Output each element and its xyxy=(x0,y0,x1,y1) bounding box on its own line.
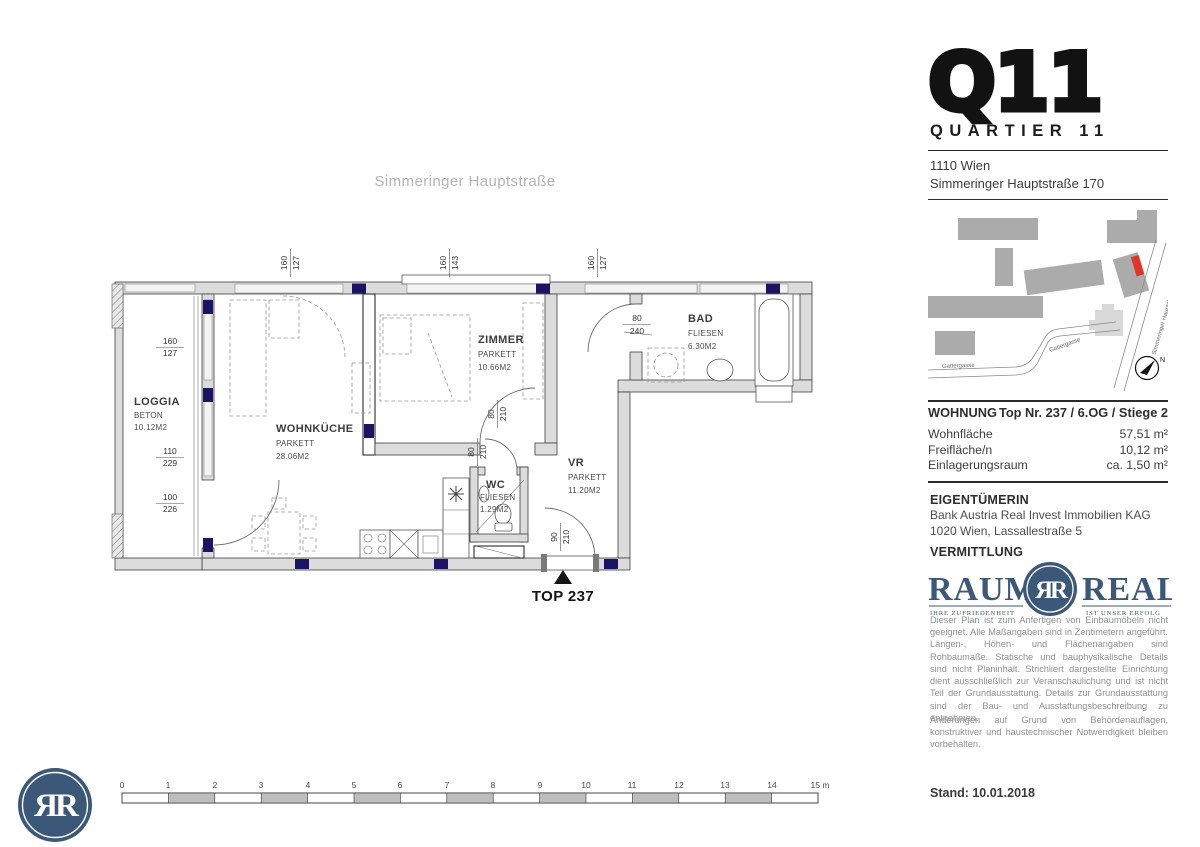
svg-text:240: 240 xyxy=(630,326,644,336)
owner-line2: 1020 Wien, Lassallestraße 5 xyxy=(930,524,1151,540)
brand-raum-text: RAUM xyxy=(928,571,1038,608)
sidebar: Q11 QUARTIER 11 1110 Wien Simmeringer Ha… xyxy=(928,0,1170,847)
map-street-label-gattergasse: Gattergasse xyxy=(942,363,976,370)
svg-text:143: 143 xyxy=(450,256,460,270)
svg-text:3: 3 xyxy=(259,780,264,790)
svg-text:229: 229 xyxy=(163,458,177,468)
svg-text:160: 160 xyxy=(163,336,177,346)
street-context-label: Simmeringer Hauptstraße xyxy=(300,173,630,190)
unit-row-value: ca. 1,50 m² xyxy=(1106,458,1168,474)
room-wohnkueche-material: PARKETT xyxy=(276,439,314,448)
divider xyxy=(928,199,1168,200)
dim-bad-door: 80 240 xyxy=(623,313,652,336)
svg-text:90: 90 xyxy=(549,532,559,542)
dim-loggia-window: 160 127 xyxy=(156,336,184,358)
broker-heading: VERMITTLUNG xyxy=(930,545,1023,559)
scale-bar-segments xyxy=(122,793,818,803)
project-address: 1110 Wien Simmeringer Hauptstraße 170 xyxy=(930,157,1104,192)
dim-window-top-left: 160 127 xyxy=(279,249,301,277)
svg-text:13: 13 xyxy=(720,780,730,790)
scale-bar: 0 1 2 3 4 5 6 7 8 9 10 11 12 13 14 15 m xyxy=(100,772,860,817)
svg-text:127: 127 xyxy=(291,256,301,270)
dim-window-top-mid: 160 143 xyxy=(438,249,460,277)
compass-icon: N xyxy=(1136,357,1166,380)
svg-text:160: 160 xyxy=(438,256,448,270)
q11-logo-text: Q11 xyxy=(928,36,1101,126)
svg-text:210: 210 xyxy=(561,530,571,544)
unit-row-label: Freifläche/n xyxy=(928,443,992,459)
disclaimer-paragraph-1: Dieser Plan ist zum Anfertigen von Einba… xyxy=(930,614,1168,724)
svg-text:10: 10 xyxy=(581,780,591,790)
top-number-label: TOP 237 xyxy=(532,588,594,605)
room-zimmer-material: PARKETT xyxy=(478,350,516,359)
raumreal-brand-logo: RAUM REAL IHRE ZUFRIEDENHEIT IST UNSER E… xyxy=(928,560,1172,620)
disclaimer-paragraph-2: Änderungen auf Grund von Behördenauflage… xyxy=(930,714,1168,751)
dim-window-top-right: 160 127 xyxy=(586,249,608,277)
room-vr-name: VR xyxy=(568,457,584,469)
divider xyxy=(928,150,1168,151)
svg-text:0: 0 xyxy=(120,780,125,790)
site-map: Gattergasse Gattergasse Simmeringer Haup… xyxy=(928,210,1168,394)
svg-text:160: 160 xyxy=(279,256,289,270)
svg-text:210: 210 xyxy=(478,445,488,459)
entrance-marker: TOP 237 xyxy=(532,570,594,605)
map-street-label-gattergasse2: Gattergasse xyxy=(1049,337,1082,354)
floor-plan: LOGGIA BETON 10.12M2 WOHNKÜCHE PARKETT 2… xyxy=(100,245,845,615)
unit-row: Freifläche/n 10,12 m² xyxy=(928,443,1168,459)
scale-bar-ticks: 0 1 2 3 4 5 6 7 8 9 10 11 12 13 14 15 m xyxy=(120,780,830,790)
owner-block: EIGENTÜMERIN Bank Austria Real Invest Im… xyxy=(930,492,1151,540)
svg-text:14: 14 xyxy=(767,780,777,790)
svg-text:80: 80 xyxy=(486,409,496,419)
svg-text:1: 1 xyxy=(166,780,171,790)
unit-row-value: 10,12 m² xyxy=(1119,443,1168,459)
compass-north-label: N xyxy=(1160,357,1165,364)
unit-row: Wohnfläche 57,51 m² xyxy=(928,427,1168,443)
unit-row-label: Einlagerungsraum xyxy=(928,458,1028,474)
svg-text:80: 80 xyxy=(632,313,642,323)
svg-text:6: 6 xyxy=(398,780,403,790)
svg-text:127: 127 xyxy=(598,256,608,270)
svg-text:8: 8 xyxy=(491,780,496,790)
svg-text:2: 2 xyxy=(213,780,218,790)
unit-info: WOHNUNG Top Nr. 237 / 6.OG / Stiege 2 Wo… xyxy=(928,405,1168,474)
brand-monogram-text: ЯR xyxy=(1035,577,1069,604)
svg-text:100: 100 xyxy=(163,492,177,502)
room-loggia-area: 10.12M2 xyxy=(134,423,167,432)
dim-entry-door: 90 210 xyxy=(549,523,571,551)
svg-text:127: 127 xyxy=(163,348,177,358)
svg-text:210: 210 xyxy=(498,407,508,421)
room-labels: LOGGIA BETON 10.12M2 WOHNKÜCHE PARKETT 2… xyxy=(134,313,723,514)
plan-date: Stand: 10.01.2018 xyxy=(930,786,1035,800)
room-zimmer-name: ZIMMER xyxy=(478,334,524,346)
svg-text:4: 4 xyxy=(306,780,311,790)
owner-heading: EIGENTÜMERIN xyxy=(930,492,1151,508)
room-wohnkueche-name: WOHNKÜCHE xyxy=(276,422,354,435)
room-wohnkueche-area: 28.06M2 xyxy=(276,452,309,461)
project-subtitle: QUARTIER 11 xyxy=(930,122,1110,141)
unit-heading: WOHNUNG xyxy=(928,405,997,420)
site-map-buildings xyxy=(928,210,1157,355)
svg-text:7: 7 xyxy=(445,780,450,790)
room-vr-material: PARKETT xyxy=(568,473,606,482)
address-line1: 1110 Wien xyxy=(930,157,1104,175)
svg-text:110: 110 xyxy=(163,446,177,456)
svg-text:11: 11 xyxy=(628,780,637,790)
svg-text:12: 12 xyxy=(674,780,684,790)
raumreal-monogram-logo: ЯR xyxy=(10,763,100,847)
room-wc-name: WC xyxy=(486,479,505,491)
q11-logo: Q11 xyxy=(928,34,1128,126)
brand-real-text: REAL xyxy=(1082,571,1172,608)
dim-loggia-window2: 100 226 xyxy=(156,492,184,514)
room-bad-area: 6.30M2 xyxy=(688,342,717,351)
room-bad-name: BAD xyxy=(688,313,713,325)
fixtures xyxy=(360,294,793,558)
room-vr-area: 11.20M2 xyxy=(568,486,601,495)
divider xyxy=(928,481,1168,483)
room-loggia-material: BETON xyxy=(134,411,163,420)
dim-loggia-door: 110 229 xyxy=(156,446,184,468)
svg-text:80: 80 xyxy=(466,447,476,457)
monogram-text: ЯR xyxy=(34,788,80,824)
dim-zimmer-door: 80 210 xyxy=(486,400,508,428)
address-line2: Simmeringer Hauptstraße 170 xyxy=(930,175,1104,193)
page: Simmeringer Hauptstraße xyxy=(0,0,1200,847)
room-wc-area: 1.29M2 xyxy=(480,505,509,514)
room-loggia-name: LOGGIA xyxy=(134,396,180,408)
entrance-arrow-icon xyxy=(554,570,572,584)
svg-text:5: 5 xyxy=(352,780,357,790)
unit-row: Einlagerungsraum ca. 1,50 m² xyxy=(928,458,1168,474)
shaft-star-icon xyxy=(448,486,464,502)
svg-text:15 m: 15 m xyxy=(811,780,830,790)
svg-text:9: 9 xyxy=(538,780,543,790)
unit-row-label: Wohnfläche xyxy=(928,427,993,443)
map-street-label-hauptstrasse: Simmeringer Hauptstraße xyxy=(1152,287,1168,355)
room-bad-material: FLIESEN xyxy=(688,329,723,338)
unit-row-value: 57,51 m² xyxy=(1119,427,1168,443)
room-wc-material: FLIESEN xyxy=(480,493,515,502)
owner-line1: Bank Austria Real Invest Immobilien KAG xyxy=(930,508,1151,524)
svg-text:160: 160 xyxy=(586,256,596,270)
room-zimmer-area: 10.66M2 xyxy=(478,363,511,372)
svg-text:226: 226 xyxy=(163,504,177,514)
unit-number: Top Nr. 237 / 6.OG / Stiege 2 xyxy=(999,405,1168,420)
divider xyxy=(928,400,1168,402)
